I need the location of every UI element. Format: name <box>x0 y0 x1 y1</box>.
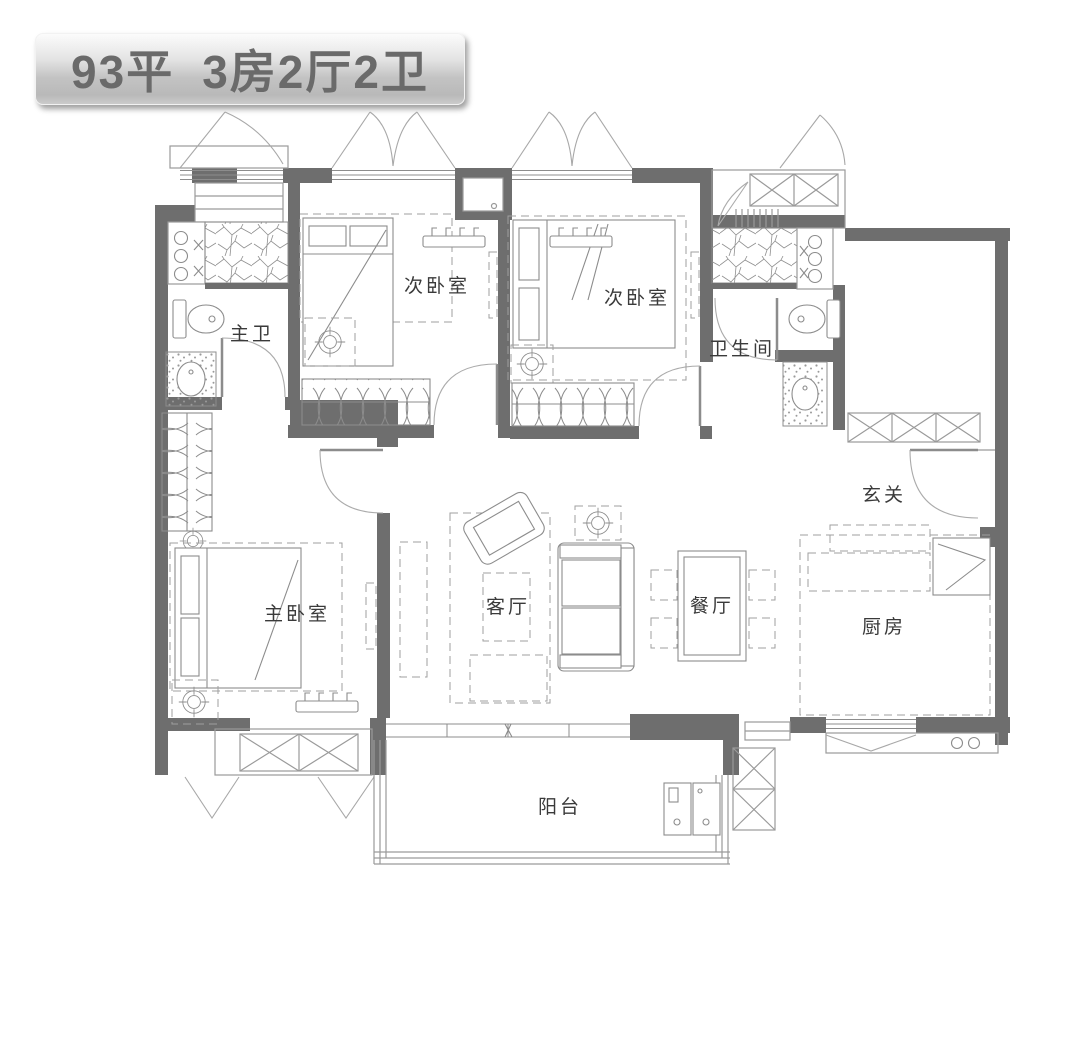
ac-platform-balcony <box>733 748 775 830</box>
door-bedroom-3 <box>639 366 700 426</box>
side-table <box>470 655 547 701</box>
fridge <box>933 538 990 595</box>
floorplan-page: 93平 3房2厅2卫 <box>0 0 1079 1051</box>
tv-console <box>400 542 427 677</box>
bay-window <box>185 729 374 818</box>
room-label-master-bath: 主卫 <box>230 323 274 345</box>
ceiling-light-icon <box>517 349 547 379</box>
ceiling-light-icon <box>583 508 613 538</box>
shelf-hooks <box>296 693 358 712</box>
shelf-hooks <box>423 228 485 247</box>
casement-window-sashes <box>180 112 845 168</box>
armchair <box>461 489 547 567</box>
shower-area <box>205 222 288 283</box>
door-master-bedroom <box>320 450 383 513</box>
chair <box>749 570 775 600</box>
foyer: 玄关 <box>830 413 980 551</box>
chair <box>651 570 677 600</box>
shower-area <box>712 228 797 283</box>
door-entrance <box>910 450 995 518</box>
counter <box>808 553 930 591</box>
living-room: 客厅 <box>400 489 634 703</box>
room-label-dining-room: 餐厅 <box>690 595 734 617</box>
room-label-kitchen: 厨房 <box>862 616 906 638</box>
sliding-door <box>386 724 630 737</box>
bedroom-2: 次卧室 <box>300 214 497 425</box>
tv-cabinet <box>366 583 376 649</box>
chair <box>749 618 775 648</box>
door-bedroom-2 <box>434 364 497 425</box>
floor-plan: 主卫 次卧室 <box>0 0 1079 1051</box>
room-label-balcony: 阳台 <box>538 796 582 818</box>
bedroom-3: 次卧室 <box>508 216 699 426</box>
stove-burner <box>969 738 980 749</box>
washing-machine <box>664 783 720 835</box>
room-label-living-room: 客厅 <box>486 596 530 618</box>
toilet <box>789 300 840 338</box>
chair <box>651 618 677 648</box>
dining-room: 餐厅 <box>651 551 775 661</box>
washer-column <box>797 228 833 289</box>
sofa <box>558 543 634 671</box>
tv-cabinet <box>691 252 699 318</box>
room-label-foyer: 玄关 <box>862 484 906 506</box>
room-label-bedroom-3: 次卧室 <box>604 287 670 309</box>
room-label-bedroom-2: 次卧室 <box>404 275 470 297</box>
hall-cabinet <box>830 525 930 551</box>
master-bath: 主卫 <box>166 222 288 406</box>
toilet <box>173 300 224 338</box>
room-label-master-bedroom: 主卧室 <box>264 603 330 625</box>
bathroom: 卫生间 <box>709 228 840 426</box>
stove-burner <box>952 738 963 749</box>
door-master-bath <box>222 338 285 397</box>
tv-cabinet <box>489 252 497 318</box>
room-label-bathroom: 卫生间 <box>709 338 775 360</box>
bay-sill <box>195 183 283 222</box>
ac-platform-topleft <box>170 146 288 168</box>
master-bedroom: 主卧室 <box>162 413 376 818</box>
